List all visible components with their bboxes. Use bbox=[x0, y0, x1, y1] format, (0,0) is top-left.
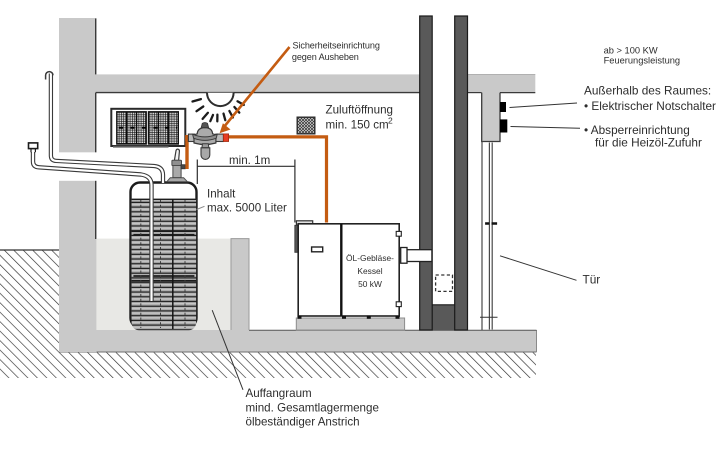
svg-text:ölbeständiger Anstrich: ölbeständiger Anstrich bbox=[246, 416, 360, 429]
svg-text:Kessel: Kessel bbox=[357, 266, 382, 276]
svg-text:für die Heizöl-Zufuhr: für die Heizöl-Zufuhr bbox=[595, 135, 702, 149]
svg-text:• Elektrischer Notschalter: • Elektrischer Notschalter bbox=[584, 99, 716, 113]
svg-text:min. 150 cm: min. 150 cm bbox=[326, 119, 389, 132]
svg-text:mind. Gesamtlagermenge: mind. Gesamtlagermenge bbox=[246, 401, 379, 414]
svg-text:50 kW: 50 kW bbox=[358, 279, 382, 289]
svg-text:Auffangraum: Auffangraum bbox=[246, 387, 312, 400]
svg-text:max. 5000 Liter: max. 5000 Liter bbox=[207, 202, 287, 215]
svg-text:2: 2 bbox=[388, 116, 393, 126]
svg-text:Sicherheitseinrichtung: Sicherheitseinrichtung bbox=[293, 41, 380, 51]
svg-text:Tür: Tür bbox=[583, 273, 601, 287]
svg-text:ÖL-Gebläse-: ÖL-Gebläse- bbox=[346, 253, 394, 263]
svg-text:gegen Ausheben: gegen Ausheben bbox=[292, 52, 359, 62]
svg-text:Außerhalb des Raumes:: Außerhalb des Raumes: bbox=[584, 83, 711, 97]
svg-text:Inhalt: Inhalt bbox=[207, 187, 236, 200]
svg-text:ab > 100 KW: ab > 100 KW bbox=[604, 46, 658, 56]
svg-text:Feuerungsleistung: Feuerungsleistung bbox=[604, 55, 681, 65]
svg-text:Zuluftöffnung: Zuluftöffnung bbox=[326, 104, 393, 117]
svg-text:min. 1m: min. 1m bbox=[229, 154, 270, 167]
